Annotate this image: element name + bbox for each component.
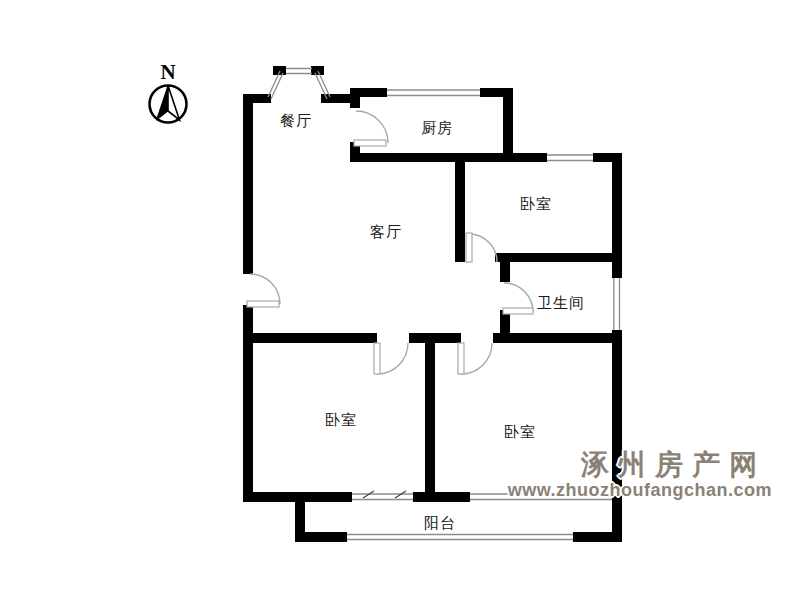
compass-north-label: N <box>160 60 175 85</box>
bedroom-bl-window <box>352 494 413 500</box>
kitchen-door <box>354 111 388 146</box>
bedroom-bl-door <box>374 343 408 374</box>
bathroom-door <box>503 283 533 314</box>
bedroom-br-door <box>458 343 492 374</box>
site-watermark: 涿州房产网 www.zhuozhoufangchan.com <box>508 450 772 500</box>
entrance-door <box>247 274 280 307</box>
room-label-balcony: 阳台 <box>424 514 456 533</box>
watermark-site-url: www.zhuozhoufangchan.com <box>508 481 772 500</box>
north-compass-icon <box>150 86 187 123</box>
floorplan-page: N 餐厅 厨房 卧室 客厅 卫生间 卧室 卧室 阳台 涿州房产网 www.zhu… <box>0 0 800 600</box>
room-label-bathroom: 卫生间 <box>537 294 585 313</box>
kitchen-window <box>387 90 480 96</box>
watermark-site-name: 涿州房产网 <box>508 450 766 479</box>
room-label-bedroom-top-right: 卧室 <box>520 195 552 214</box>
room-label-living: 客厅 <box>370 223 402 242</box>
balcony-window <box>347 535 573 540</box>
floorplan-drawing <box>0 0 800 600</box>
room-label-bedroom-bottom-right: 卧室 <box>504 423 536 442</box>
bedroom-tr-door <box>466 233 497 262</box>
bedroom-tr-window <box>547 155 593 161</box>
room-label-kitchen: 厨房 <box>421 119 453 138</box>
room-label-dining: 餐厅 <box>280 112 312 131</box>
room-label-bedroom-bottom-left: 卧室 <box>325 411 357 430</box>
bathroom-window <box>614 278 620 330</box>
